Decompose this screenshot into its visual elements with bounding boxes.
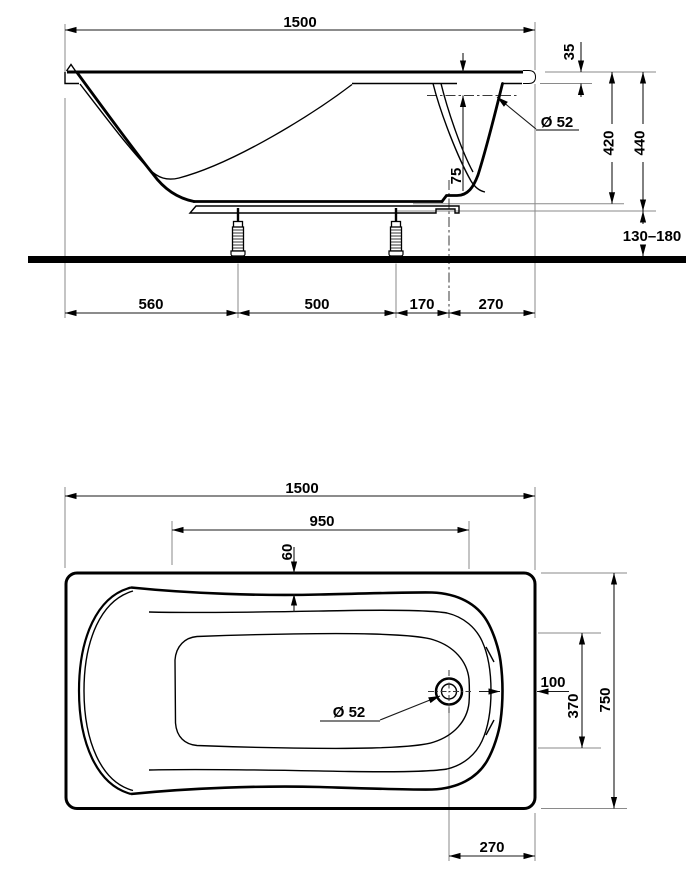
dim-label-75: 75 [448, 168, 465, 185]
bottom-flat-outline [175, 634, 469, 749]
bathtub-side-profile [28, 65, 686, 264]
dim-body-height: 440 [632, 72, 649, 211]
inner-rim-contour [131, 588, 503, 795]
dim-overflow-depth: 75 [448, 53, 465, 191]
dim-bottom-segments: 560 500 170 270 [65, 296, 535, 313]
adjustable-foot-left [231, 208, 245, 256]
inner-contour-second [149, 610, 491, 772]
dim-label-100: 100 [540, 674, 565, 691]
dim-label-500: 500 [304, 296, 329, 313]
dim-label-950: 950 [309, 513, 334, 530]
dim-label-60: 60 [279, 544, 296, 561]
dim-inner-depth: 420 [601, 72, 618, 204]
dim-top-overall-length: 1500 [65, 480, 535, 497]
bathtub-technical-drawing: 1500 35 75 Ø 52 420 440 [0, 0, 694, 867]
dim-label-370: 370 [565, 693, 582, 718]
dim-drain-diameter: Ø 52 [320, 696, 440, 721]
dim-bowl-to-edge: 100 [479, 674, 569, 692]
dim-label-440: 440 [632, 130, 649, 155]
dim-label-35: 35 [561, 44, 578, 61]
dim-label-side-drain: Ø 52 [541, 114, 574, 131]
dim-label-side-270: 270 [478, 296, 503, 313]
rim-end-cap [523, 71, 536, 84]
tub-outer-rim [66, 573, 535, 809]
bathtub-plan [66, 573, 535, 809]
headrest-arc-outer [79, 588, 131, 795]
dim-bottom-width: 370 [565, 633, 582, 748]
dim-label-170: 170 [409, 296, 434, 313]
side-view: 1500 35 75 Ø 52 420 440 [28, 14, 686, 318]
dim-label-130-180: 130–180 [623, 228, 681, 245]
dim-label-420: 420 [601, 130, 618, 155]
drawing-page: 1500 35 75 Ø 52 420 440 [0, 0, 694, 867]
dim-label-top-270: 270 [479, 839, 504, 856]
floor-line [28, 256, 686, 263]
dim-label-top-drain: Ø 52 [333, 704, 366, 721]
top-view: 1500 950 60 100 Ø 52 370 750 [65, 480, 627, 861]
dim-overall-width: 750 [597, 573, 614, 809]
dim-label-560: 560 [138, 296, 163, 313]
dim-foot-height: 130–180 [623, 211, 681, 256]
adjustable-foot-right [389, 208, 403, 256]
dim-label-top-1500: 1500 [285, 480, 318, 497]
dim-rim-height: 35 [561, 42, 581, 97]
dim-drain-offset: 270 [449, 839, 535, 856]
dim-label-750: 750 [597, 687, 614, 712]
dim-label-side-1500: 1500 [283, 14, 316, 31]
headrest-arc-inner [84, 591, 133, 791]
front-wall [77, 73, 194, 202]
dim-rim-flat-width: 60 [279, 544, 296, 612]
extension-lines [65, 22, 656, 318]
dim-side-overall-length: 1500 [65, 14, 535, 31]
support-frame [190, 206, 459, 213]
dim-bottom-length: 950 [172, 513, 469, 530]
dim-overflow-diameter: Ø 52 [497, 97, 579, 131]
